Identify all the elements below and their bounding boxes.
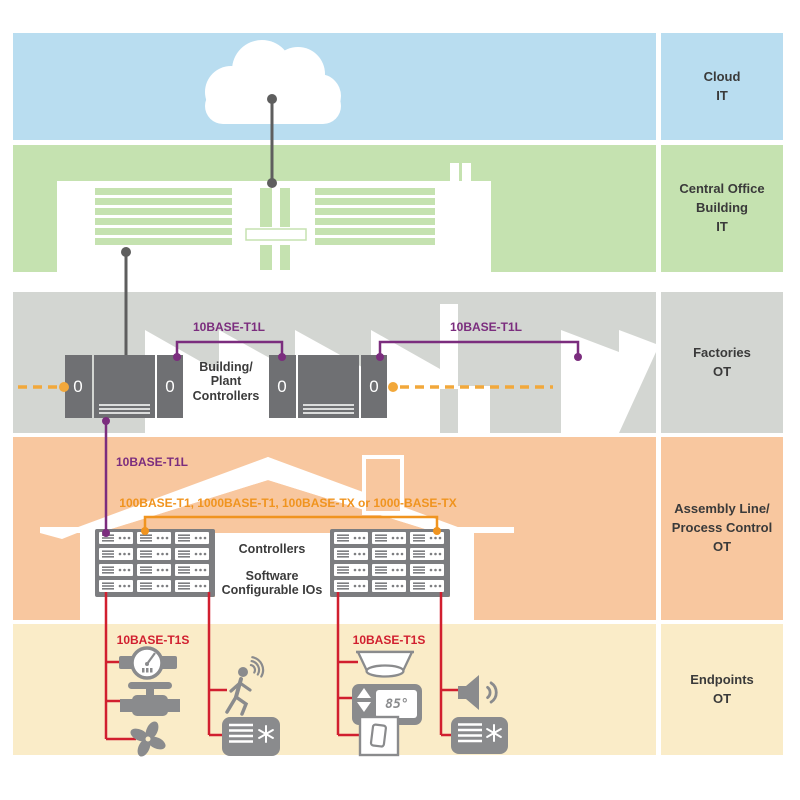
light-switch-icon — [360, 717, 398, 755]
ac-unit-icon-right — [451, 717, 508, 754]
entrance-canopy — [246, 229, 306, 240]
bus-node — [141, 527, 149, 535]
t1l-label-factory-left: 10BASE-T1L — [193, 320, 265, 334]
cabinet-display-3: 0 — [277, 377, 286, 397]
controllers-label: Controllers — [239, 542, 306, 556]
cabinet-display-4: 0 — [369, 377, 378, 397]
valve-icon — [120, 682, 180, 716]
link-node — [267, 178, 277, 188]
ceiling-light-icon — [356, 652, 414, 677]
t1s-label-left: 10BASE-T1S — [117, 633, 190, 647]
t1s-label-right: 10BASE-T1S — [353, 633, 426, 647]
link-node — [267, 94, 277, 104]
cabinet-display-1: 0 — [73, 377, 82, 397]
network-architecture-diagram: Cloud IT Central Office Building IT Fact… — [0, 0, 800, 800]
ac-unit-icon-left — [222, 717, 280, 756]
diagram-artwork — [0, 0, 800, 800]
controller-rack-2 — [330, 529, 450, 597]
speaker-icon — [458, 675, 496, 710]
pressure-gauge-icon — [119, 648, 177, 678]
thermostat-reading: 85° — [385, 697, 408, 712]
link-node — [121, 247, 131, 257]
bus-node — [433, 527, 441, 535]
fieldbus-node — [388, 382, 398, 392]
factory-chimney — [440, 304, 458, 389]
fieldbus-node — [59, 382, 69, 392]
t1l-label-assembly: 10BASE-T1L — [116, 455, 188, 469]
motion-sensor-icon — [227, 657, 263, 714]
assembly-bus-label: 100BASE-T1, 1000BASE-T1, 100BASE-TX or 1… — [119, 496, 456, 510]
motion-waves — [251, 657, 263, 676]
building-plant-controllers-label: Building/ Plant Controllers — [193, 360, 260, 403]
software-io-label: Software Configurable IOs — [222, 569, 323, 598]
cabinet-display-2: 0 — [165, 377, 174, 397]
controller-rack-1 — [95, 529, 215, 597]
t1l-label-factory-right: 10BASE-T1L — [450, 320, 522, 334]
